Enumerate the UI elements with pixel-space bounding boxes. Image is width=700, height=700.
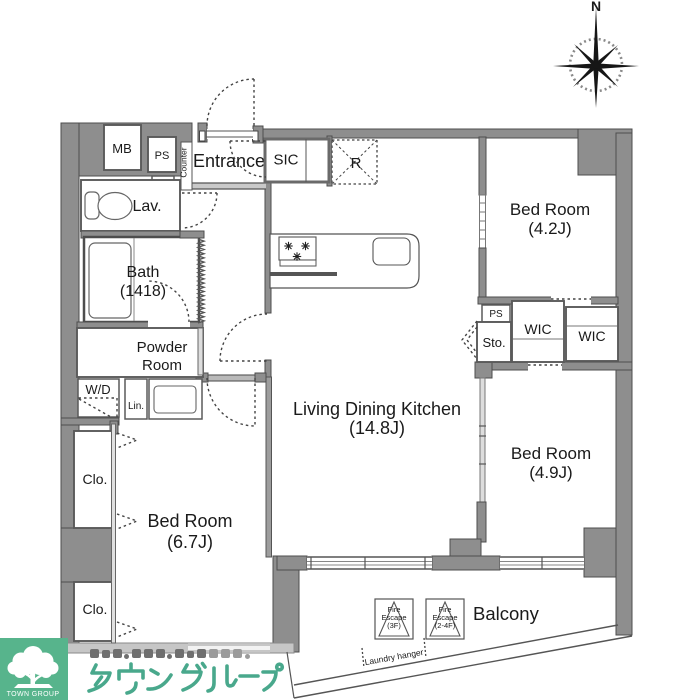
svg-text:(2-4F): (2-4F) <box>435 621 456 630</box>
svg-text:Living Dining Kitchen: Living Dining Kitchen <box>293 399 461 419</box>
svg-text:Balcony: Balcony <box>473 603 540 624</box>
svg-text:(4.9J): (4.9J) <box>529 463 572 482</box>
svg-text:W/D: W/D <box>85 382 110 397</box>
svg-text:PS: PS <box>155 150 170 162</box>
svg-text:Counter: Counter <box>179 147 189 177</box>
svg-text:Room: Room <box>142 357 182 374</box>
svg-text:(1418): (1418) <box>120 283 166 300</box>
svg-text:Lin.: Lin. <box>128 401 144 412</box>
svg-text:(4.2J): (4.2J) <box>528 219 571 238</box>
svg-text:TOWN GROUP: TOWN GROUP <box>7 691 60 698</box>
svg-text:Bed Room: Bed Room <box>510 200 590 219</box>
svg-text:Clo.: Clo. <box>83 601 108 617</box>
svg-text:Lav.: Lav. <box>132 198 161 215</box>
svg-text:(3F): (3F) <box>387 621 401 630</box>
svg-text:Bed Room: Bed Room <box>511 444 591 463</box>
svg-text:WIC: WIC <box>578 328 605 344</box>
svg-text:WIC: WIC <box>524 321 551 337</box>
svg-text:(6.7J): (6.7J) <box>167 532 213 552</box>
svg-text:Sto.: Sto. <box>482 335 505 350</box>
svg-text:SIC: SIC <box>273 152 298 169</box>
svg-text:(14.8J): (14.8J) <box>349 418 405 438</box>
svg-text:MB: MB <box>112 141 132 156</box>
svg-text:Clo.: Clo. <box>83 471 108 487</box>
svg-text:R: R <box>351 155 362 172</box>
svg-text:Bath: Bath <box>127 264 160 281</box>
svg-text:Bed Room: Bed Room <box>147 511 232 531</box>
svg-text:Entrance: Entrance <box>193 151 265 171</box>
svg-text:Powder: Powder <box>137 339 188 356</box>
svg-text:PS: PS <box>489 309 503 320</box>
